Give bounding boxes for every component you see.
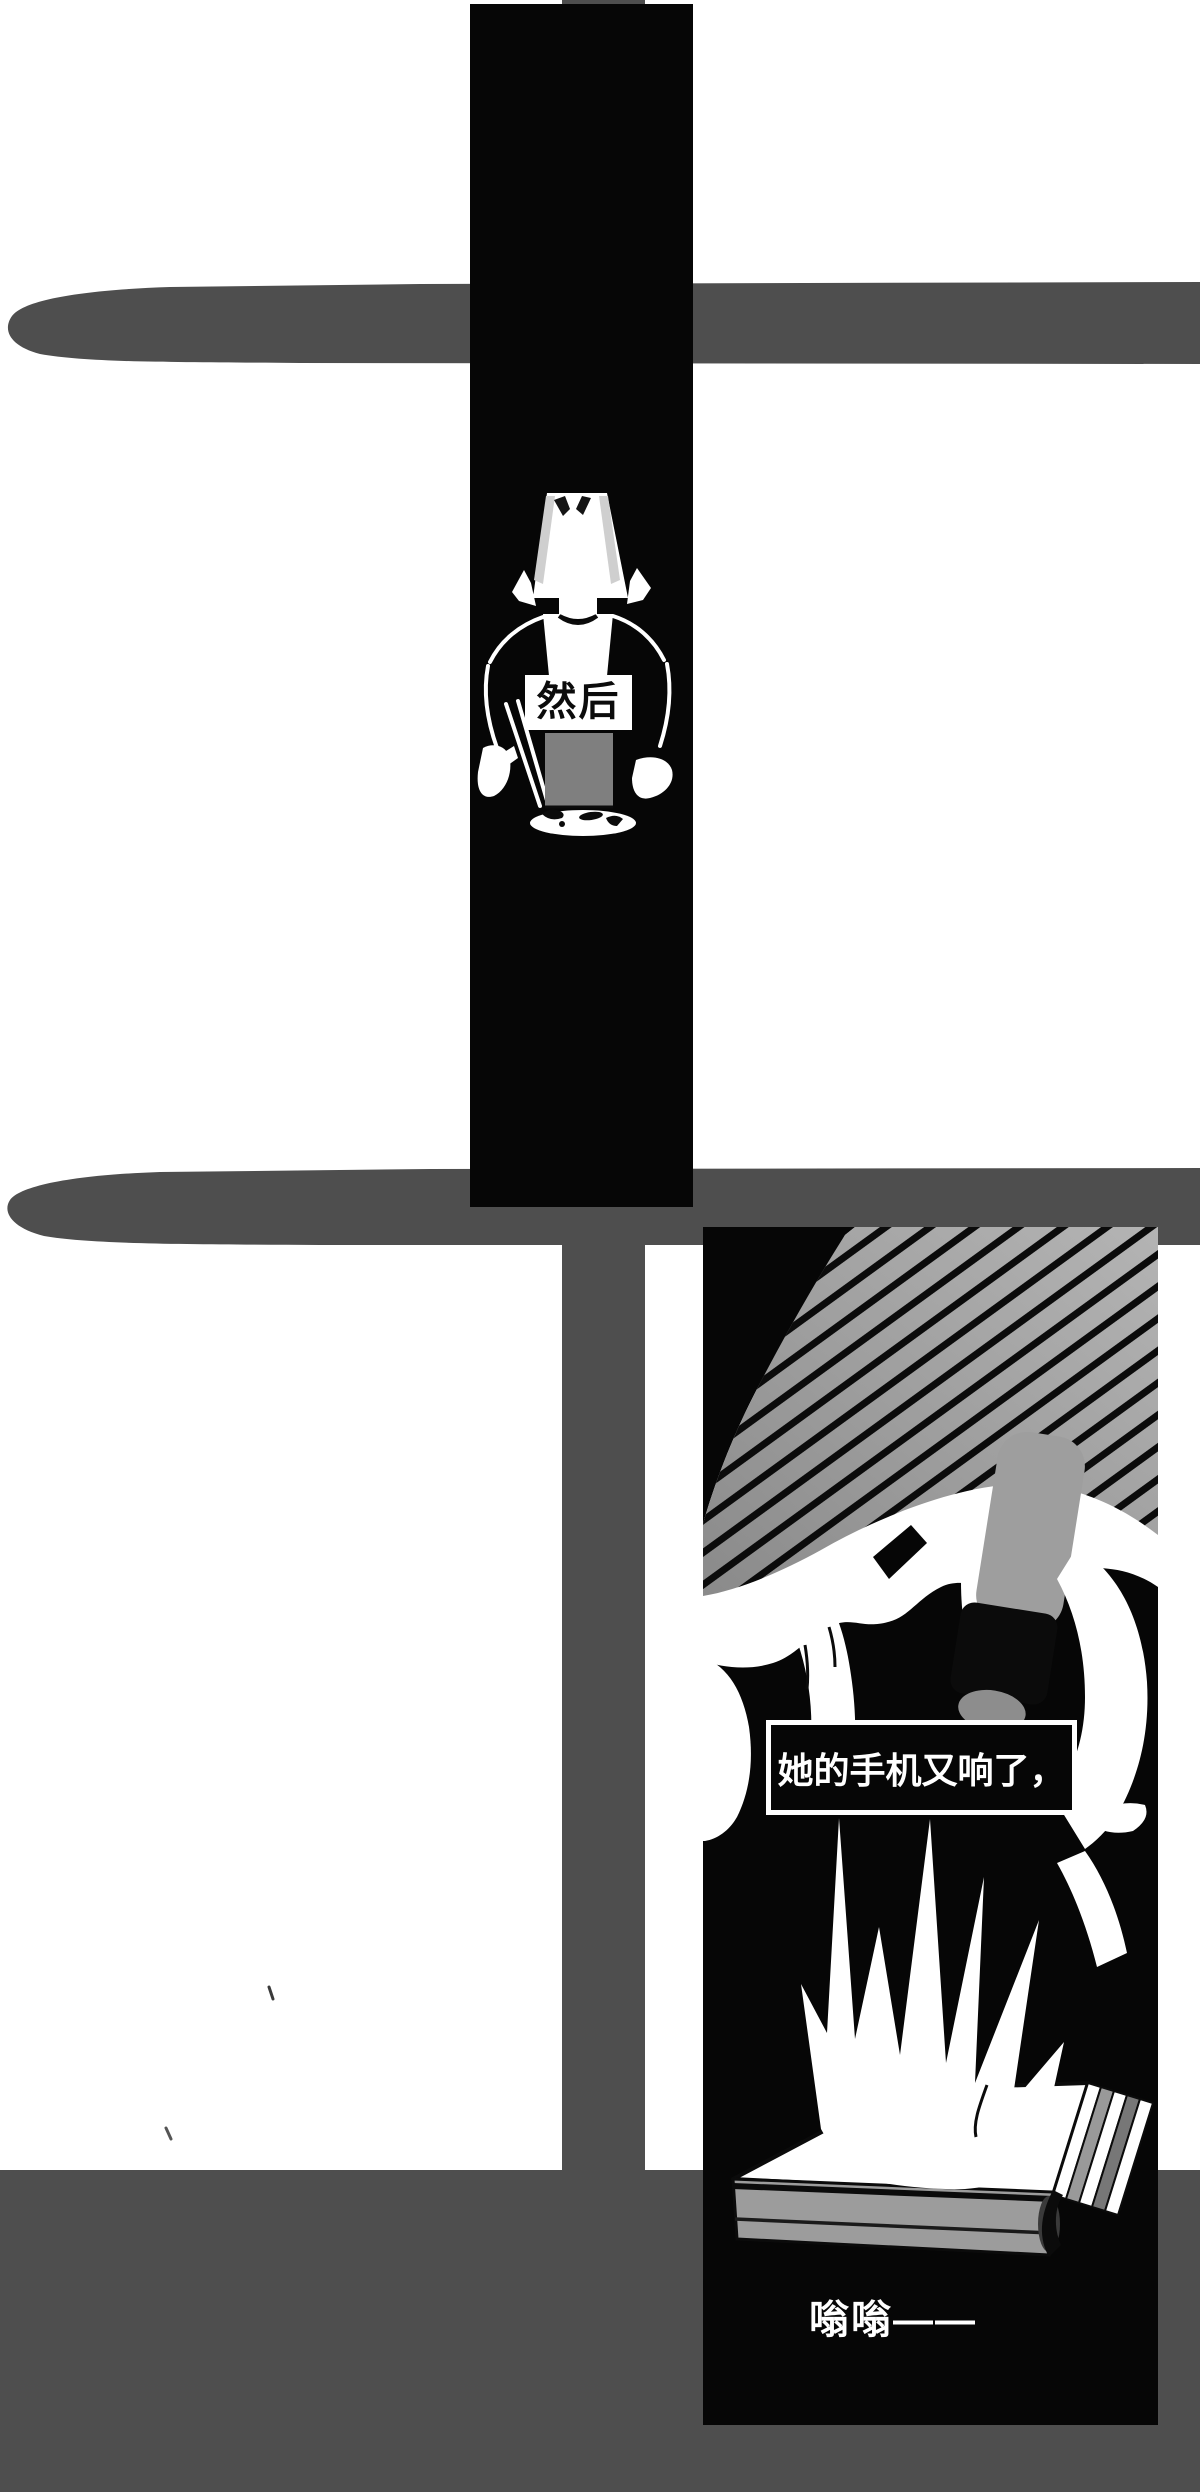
- flash-burst: [801, 1818, 1064, 2189]
- panel-2: 她的手机又响了， 嗡嗡——: [703, 1227, 1158, 2425]
- ink-speck-2: [166, 2128, 171, 2139]
- bowl: [545, 733, 613, 807]
- hair-tuft-right: [627, 568, 651, 604]
- plate: [530, 810, 636, 836]
- panel-2-caption-box: 她的手机又响了，: [766, 1720, 1077, 1815]
- ink-speck-1: [269, 1987, 273, 1999]
- hair-tuft-left: [512, 570, 536, 606]
- figure-body: [543, 598, 613, 676]
- panel-1-caption: 然后: [525, 675, 632, 730]
- panel-1-drawing: [470, 4, 693, 1207]
- finger-left: [703, 1657, 751, 1841]
- sfx-text: 嗡嗡——: [763, 2295, 1023, 2345]
- fingernail: [948, 1600, 1059, 1706]
- panel-1: 然后: [470, 4, 693, 1207]
- figure-hand-right: [632, 757, 673, 798]
- comic-page: 然后: [0, 0, 1200, 2492]
- panel-2-caption-text: 她的手机又响了，: [777, 1742, 1065, 1794]
- figure-head: [533, 493, 628, 598]
- panel-2-drawing: [703, 1227, 1158, 2425]
